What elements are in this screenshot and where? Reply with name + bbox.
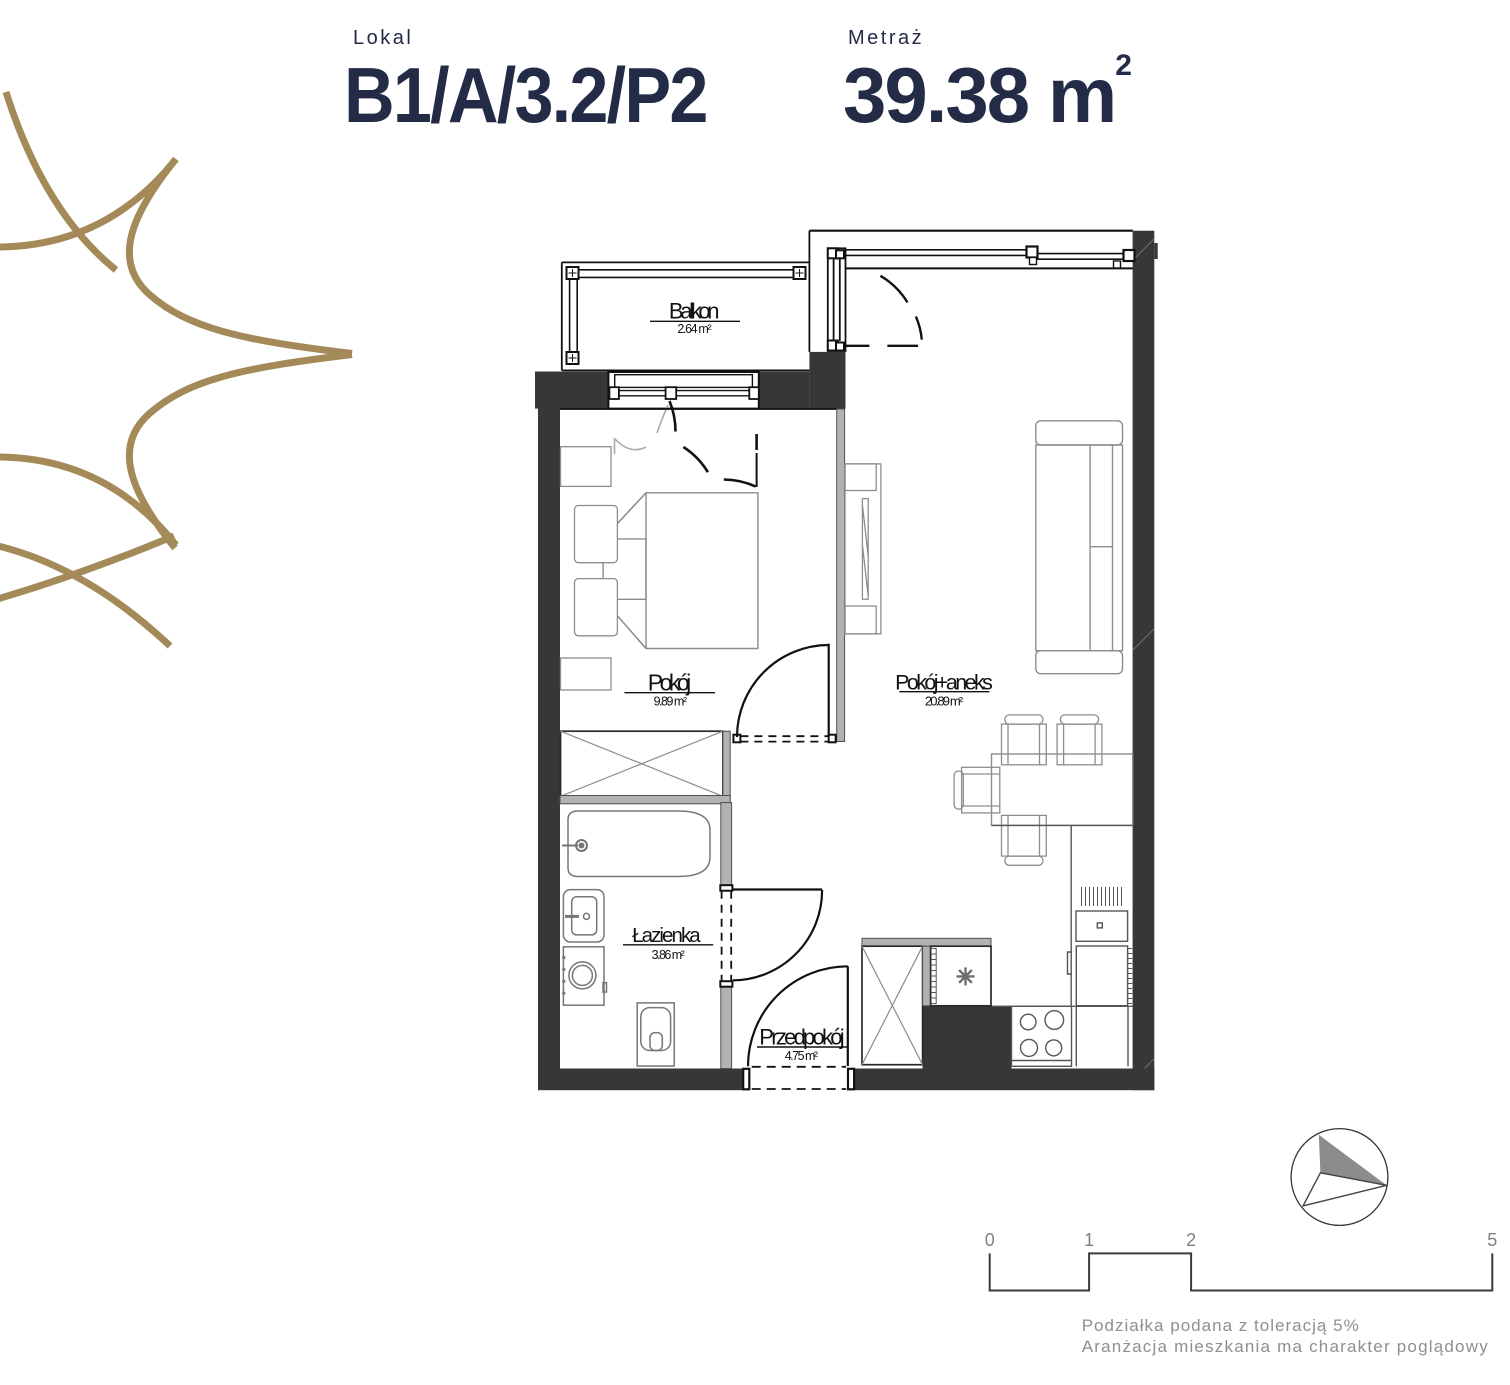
svg-text:0: 0 <box>985 1230 995 1250</box>
svg-text:Łazienka: Łazienka <box>632 924 701 947</box>
svg-text:20.89 m²: 20.89 m² <box>925 694 964 709</box>
svg-text:3.86 m²: 3.86 m² <box>652 948 685 962</box>
svg-text:Aranżacja mieszkania ma charak: Aranżacja mieszkania ma charakter pogląd… <box>1082 1337 1489 1356</box>
svg-text:2: 2 <box>1186 1230 1196 1250</box>
svg-text:9.89 m²: 9.89 m² <box>654 694 687 708</box>
svg-text:Balkon: Balkon <box>669 299 720 324</box>
svg-text:Pokój: Pokój <box>648 670 692 696</box>
svg-text:Przedpokój: Przedpokój <box>759 1025 844 1050</box>
svg-text:Podziałka podana z toleracją 5: Podziałka podana z toleracją 5% <box>1082 1316 1359 1335</box>
svg-text:1: 1 <box>1084 1230 1094 1250</box>
svg-text:4.75 m²: 4.75 m² <box>785 1049 818 1063</box>
svg-text:5: 5 <box>1487 1230 1497 1250</box>
svg-text:2.64 m²: 2.64 m² <box>677 322 711 336</box>
